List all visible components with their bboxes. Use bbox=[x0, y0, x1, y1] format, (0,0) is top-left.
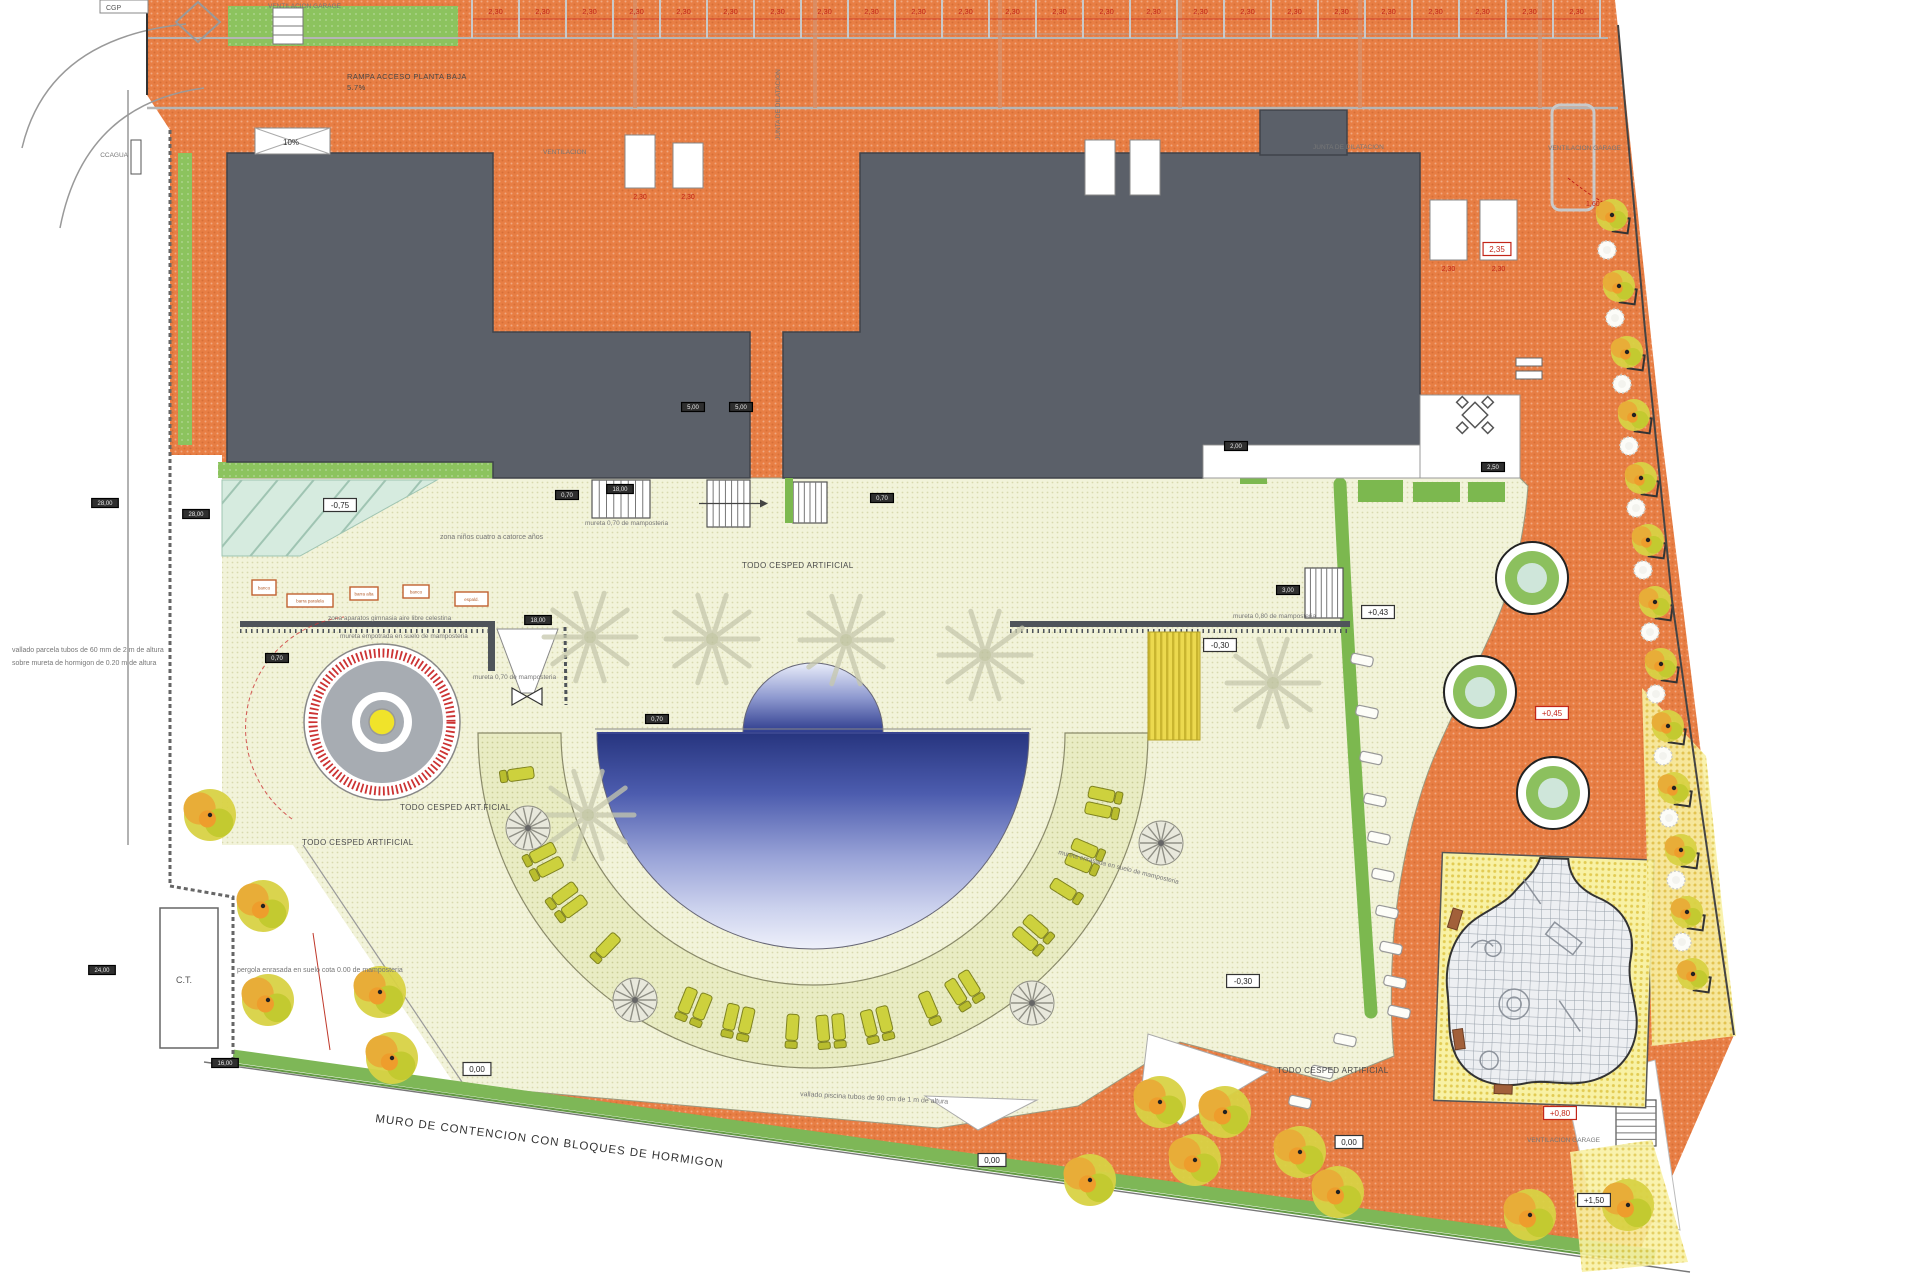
shrub-icon bbox=[1673, 933, 1691, 951]
vent-dim: 2,30 bbox=[1442, 266, 1456, 273]
planter-icon bbox=[1496, 542, 1568, 614]
bay-dim: 2,30 bbox=[864, 7, 879, 16]
gym-equipment-label: banco bbox=[258, 586, 271, 591]
elevation-tag: 5,00 bbox=[730, 403, 753, 412]
shrub-icon bbox=[1620, 437, 1638, 455]
label-todo3: TODO CESPED ARTIFICIAL bbox=[302, 838, 414, 847]
label-junta-h: JUNTA DE DILATACION bbox=[1313, 144, 1384, 151]
elevation-tag: 2,35 bbox=[1483, 243, 1511, 256]
label-vallado1: vallado parcela tubos de 60 mm de 2 m de… bbox=[12, 647, 164, 654]
vent-shaft bbox=[1085, 140, 1115, 195]
bay-dim: 2,30 bbox=[629, 7, 644, 16]
tag-value: 18,00 bbox=[530, 618, 546, 624]
tag-value: 2,35 bbox=[1489, 245, 1505, 254]
umbrella-icon bbox=[1010, 981, 1054, 1025]
shrub-icon bbox=[1647, 685, 1665, 703]
striped-ramp-east bbox=[1148, 632, 1200, 740]
bay-dim: 2,30 bbox=[1193, 7, 1208, 16]
vent-shaft bbox=[1430, 200, 1467, 260]
elevation-tag: 18,00 bbox=[607, 485, 634, 494]
bay-dim: 2,30 bbox=[676, 7, 691, 16]
elevation-tag: +0,43 bbox=[1362, 606, 1395, 619]
cgp-box: CGP bbox=[100, 0, 148, 13]
shrub-icon bbox=[1627, 499, 1645, 517]
label-dim160: 1,60 bbox=[1586, 201, 1600, 208]
bay-dim: 2,30 bbox=[1005, 7, 1020, 16]
elevation-tag: 2,50 bbox=[1482, 463, 1505, 472]
umbrella-icon bbox=[1139, 821, 1183, 865]
label-todo1: TODO CESPED ARTIFICIAL bbox=[742, 561, 854, 570]
label-rampa: RAMPA ACCESO PLANTA BAJA bbox=[347, 72, 467, 81]
grass-under-building bbox=[218, 462, 493, 478]
elevation-tag: -0,30 bbox=[1227, 975, 1260, 988]
bay-dim: 2,30 bbox=[1146, 7, 1161, 16]
tag-value: 0,00 bbox=[984, 1156, 1000, 1165]
label-ccagua: CCAGUA bbox=[100, 152, 128, 159]
vent-shaft bbox=[625, 135, 655, 188]
label-vent-garage-tl: VENTILACION GARAGE bbox=[268, 3, 342, 10]
tag-value: 24,00 bbox=[94, 968, 110, 974]
elevation-tag: +0,80 bbox=[1544, 1107, 1577, 1120]
elevation-tag: -0,75 bbox=[324, 499, 357, 512]
bay-dim: 2,30 bbox=[1475, 7, 1490, 16]
elevation-tag: 2,00 bbox=[1225, 442, 1248, 451]
tag-value: 0,00 bbox=[1341, 1138, 1357, 1147]
bay-dim: 2,30 bbox=[488, 7, 503, 16]
tag-value: 0,70 bbox=[271, 656, 283, 662]
staircase bbox=[793, 482, 827, 523]
tag-value: 5,00 bbox=[687, 405, 699, 411]
grass-top-left bbox=[228, 6, 458, 46]
elevation-tag: 5,00 bbox=[682, 403, 705, 412]
elevation-tag: 0,70 bbox=[871, 494, 894, 503]
label-ventilacion: VENTILACION bbox=[543, 149, 587, 156]
tag-value: 18,00 bbox=[612, 487, 628, 493]
sunbed-icon bbox=[1516, 371, 1542, 379]
svg-text:CGP: CGP bbox=[106, 5, 122, 12]
bay-dim: 2,30 bbox=[1569, 7, 1584, 16]
tag-value: 5,00 bbox=[735, 405, 747, 411]
elevation-tag: 0,00 bbox=[1335, 1136, 1363, 1149]
shrub-icon bbox=[1634, 561, 1652, 579]
label-zona-ninos: zona niños cuatro a catorce años bbox=[440, 534, 544, 541]
label-mureta-empotrada: mureta empotrada en suelo de mamposteria bbox=[340, 633, 468, 640]
bay-dim: 2,30 bbox=[1522, 7, 1537, 16]
tag-value: -0,30 bbox=[1211, 641, 1230, 650]
gym-equipment-box: barra paralela bbox=[287, 594, 333, 607]
elevation-tag: 16,00 bbox=[212, 1059, 239, 1068]
sun-lounger-icon bbox=[785, 1014, 799, 1049]
label-todo2: TODO CESPED ART.FICIAL bbox=[400, 803, 511, 812]
elevation-tag: 0,70 bbox=[556, 491, 579, 500]
tag-value: 28,00 bbox=[97, 501, 113, 507]
tag-value: 3,00 bbox=[1282, 588, 1294, 594]
gym-equipment-box: banco bbox=[252, 580, 276, 595]
vent-dim: 2,30 bbox=[681, 194, 695, 201]
elevation-tag: 28,00 bbox=[183, 510, 210, 519]
label-zona-aparatos: zona aparatos gimnasia aire libre celest… bbox=[328, 615, 452, 622]
transformer-box: C.T. bbox=[160, 908, 218, 1048]
tag-value: -0,75 bbox=[331, 501, 350, 510]
label-rampa-pct: 5.7% bbox=[347, 83, 366, 92]
label-10pct: 10% bbox=[283, 138, 299, 147]
site-plan-page: 2,302,302,302,302,302,302,302,302,302,30… bbox=[0, 0, 1920, 1280]
bay-dim: 2,30 bbox=[770, 7, 785, 16]
elevation-tag: 0,70 bbox=[646, 715, 669, 724]
tag-value: 16,00 bbox=[217, 1061, 233, 1067]
label-pergola: pergola enrasada en suelo cota 0.00 de m… bbox=[237, 967, 403, 974]
elevation-tag: +1,50 bbox=[1578, 1194, 1611, 1207]
staircase bbox=[1305, 568, 1343, 618]
shrub-icon bbox=[1606, 309, 1624, 327]
playground bbox=[1434, 853, 1655, 1108]
elevation-tag: 28,00 bbox=[92, 499, 119, 508]
gym-equipment-box: barra alta bbox=[350, 587, 378, 600]
bay-dim: 2,30 bbox=[723, 7, 738, 16]
ct-label: C.T. bbox=[176, 975, 192, 985]
bay-dim: 2,30 bbox=[817, 7, 832, 16]
gym-equipment-label: barra alta bbox=[354, 592, 374, 597]
grass-by-stair bbox=[785, 478, 793, 523]
tag-value: -0,30 bbox=[1234, 977, 1253, 986]
label-vallado2: sobre mureta de hormigon de 0.20 m de al… bbox=[12, 660, 156, 667]
tag-value: 0,70 bbox=[561, 493, 573, 499]
gym-equipment-box: espald. bbox=[455, 592, 488, 606]
bay-dim: 2,30 bbox=[958, 7, 973, 16]
tag-value: 0,70 bbox=[651, 717, 663, 723]
elevation-tag: 0,00 bbox=[978, 1154, 1006, 1167]
tag-value: +0,45 bbox=[1542, 709, 1563, 718]
tag-value: +0,43 bbox=[1368, 608, 1389, 617]
bay-dim: 2,30 bbox=[1099, 7, 1114, 16]
gym-equipment-label: espald. bbox=[464, 597, 479, 602]
bay-dim: 2,30 bbox=[535, 7, 550, 16]
sunbed-icon bbox=[1516, 358, 1542, 366]
tag-value: 0,70 bbox=[876, 496, 888, 502]
planter-icon bbox=[1517, 757, 1589, 829]
tree-icon bbox=[1063, 1154, 1116, 1206]
elevation-tag: 3,00 bbox=[1277, 586, 1300, 595]
vent-shaft bbox=[1130, 140, 1160, 195]
vent-shaft bbox=[673, 143, 703, 188]
site-plan-svg: 2,302,302,302,302,302,302,302,302,302,30… bbox=[0, 0, 1920, 1280]
vent-dim: 2,30 bbox=[1492, 266, 1506, 273]
tag-value: 2,00 bbox=[1230, 444, 1242, 450]
gym-equipment-box: banco bbox=[403, 585, 429, 598]
shrub-icon bbox=[1598, 241, 1616, 259]
tag-value: 0,00 bbox=[469, 1065, 485, 1074]
bay-dim: 2,30 bbox=[1334, 7, 1349, 16]
elevation-tag: 18,00 bbox=[525, 616, 552, 625]
label-todo4: TODO CESPED ARTIFICIAL bbox=[1277, 1066, 1389, 1075]
shrub-icon bbox=[1641, 623, 1659, 641]
elevation-tag: 0,70 bbox=[266, 654, 289, 663]
label-vent-garage-br: VENTILACION GARAGE bbox=[1527, 1137, 1601, 1144]
bay-dim: 2,30 bbox=[1240, 7, 1255, 16]
tag-value: +1,50 bbox=[1584, 1196, 1605, 1205]
elevation-tag: -0,30 bbox=[1204, 639, 1237, 652]
bay-dim: 2,30 bbox=[1428, 7, 1443, 16]
shrub-icon bbox=[1667, 871, 1685, 889]
tag-value: 28,00 bbox=[188, 512, 204, 518]
umbrella-icon bbox=[506, 806, 550, 850]
label-mureta080: mureta 0,80 de mamposteria bbox=[1233, 613, 1316, 620]
label-mureta070a: mureta 0,70 de mamposteria bbox=[585, 520, 668, 527]
table-and-chairs-icon bbox=[1457, 397, 1494, 434]
tag-value: 2,50 bbox=[1487, 465, 1499, 471]
label-junta-v: JUNTA DE DILATACION bbox=[775, 69, 782, 140]
gym-equipment-label: banco bbox=[410, 590, 423, 595]
bay-dim: 2,30 bbox=[911, 7, 926, 16]
elevation-tag: 24,00 bbox=[89, 966, 116, 975]
planter-icon bbox=[1444, 656, 1516, 728]
gym-equipment-label: barra paralela bbox=[296, 599, 324, 604]
shrub-icon bbox=[1660, 809, 1678, 827]
elevation-tag: +0,45 bbox=[1536, 707, 1569, 720]
label-mureta070b: mureta 0,70 de mamposteria bbox=[473, 674, 556, 681]
elevation-tag: 0,00 bbox=[463, 1063, 491, 1076]
ccagua-meter-icon bbox=[131, 140, 141, 174]
bay-dim: 2,30 bbox=[1052, 7, 1067, 16]
building-east bbox=[783, 153, 1420, 478]
label-vent-garage-tr: VENTILACION GARAGE bbox=[1548, 145, 1622, 152]
vent-grate-icon bbox=[273, 8, 303, 44]
bay-dim: 2,30 bbox=[1381, 7, 1396, 16]
shrub-icon bbox=[1613, 375, 1631, 393]
bay-dim: 2,30 bbox=[1287, 7, 1302, 16]
grass-west-vertical bbox=[178, 153, 192, 445]
tag-value: +0,80 bbox=[1550, 1109, 1571, 1118]
shrub-icon bbox=[1654, 747, 1672, 765]
bay-dim: 2,30 bbox=[582, 7, 597, 16]
vent-dim: 2,30 bbox=[633, 194, 647, 201]
umbrella-icon bbox=[613, 978, 657, 1022]
